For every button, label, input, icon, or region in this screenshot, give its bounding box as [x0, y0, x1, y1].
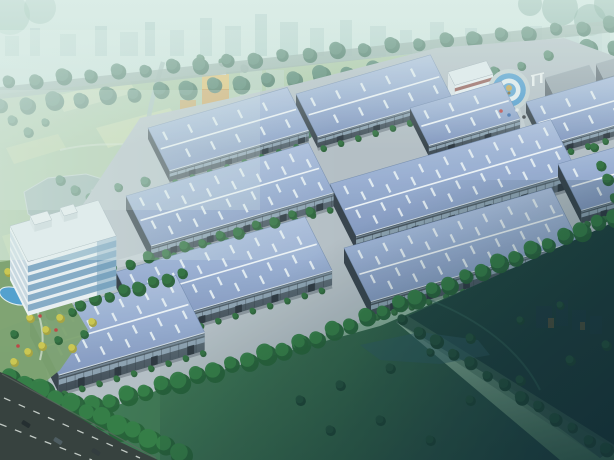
- atmosphere: [0, 0, 614, 460]
- scene-canvas: [0, 0, 614, 460]
- industrial-park-rendering: [0, 0, 614, 460]
